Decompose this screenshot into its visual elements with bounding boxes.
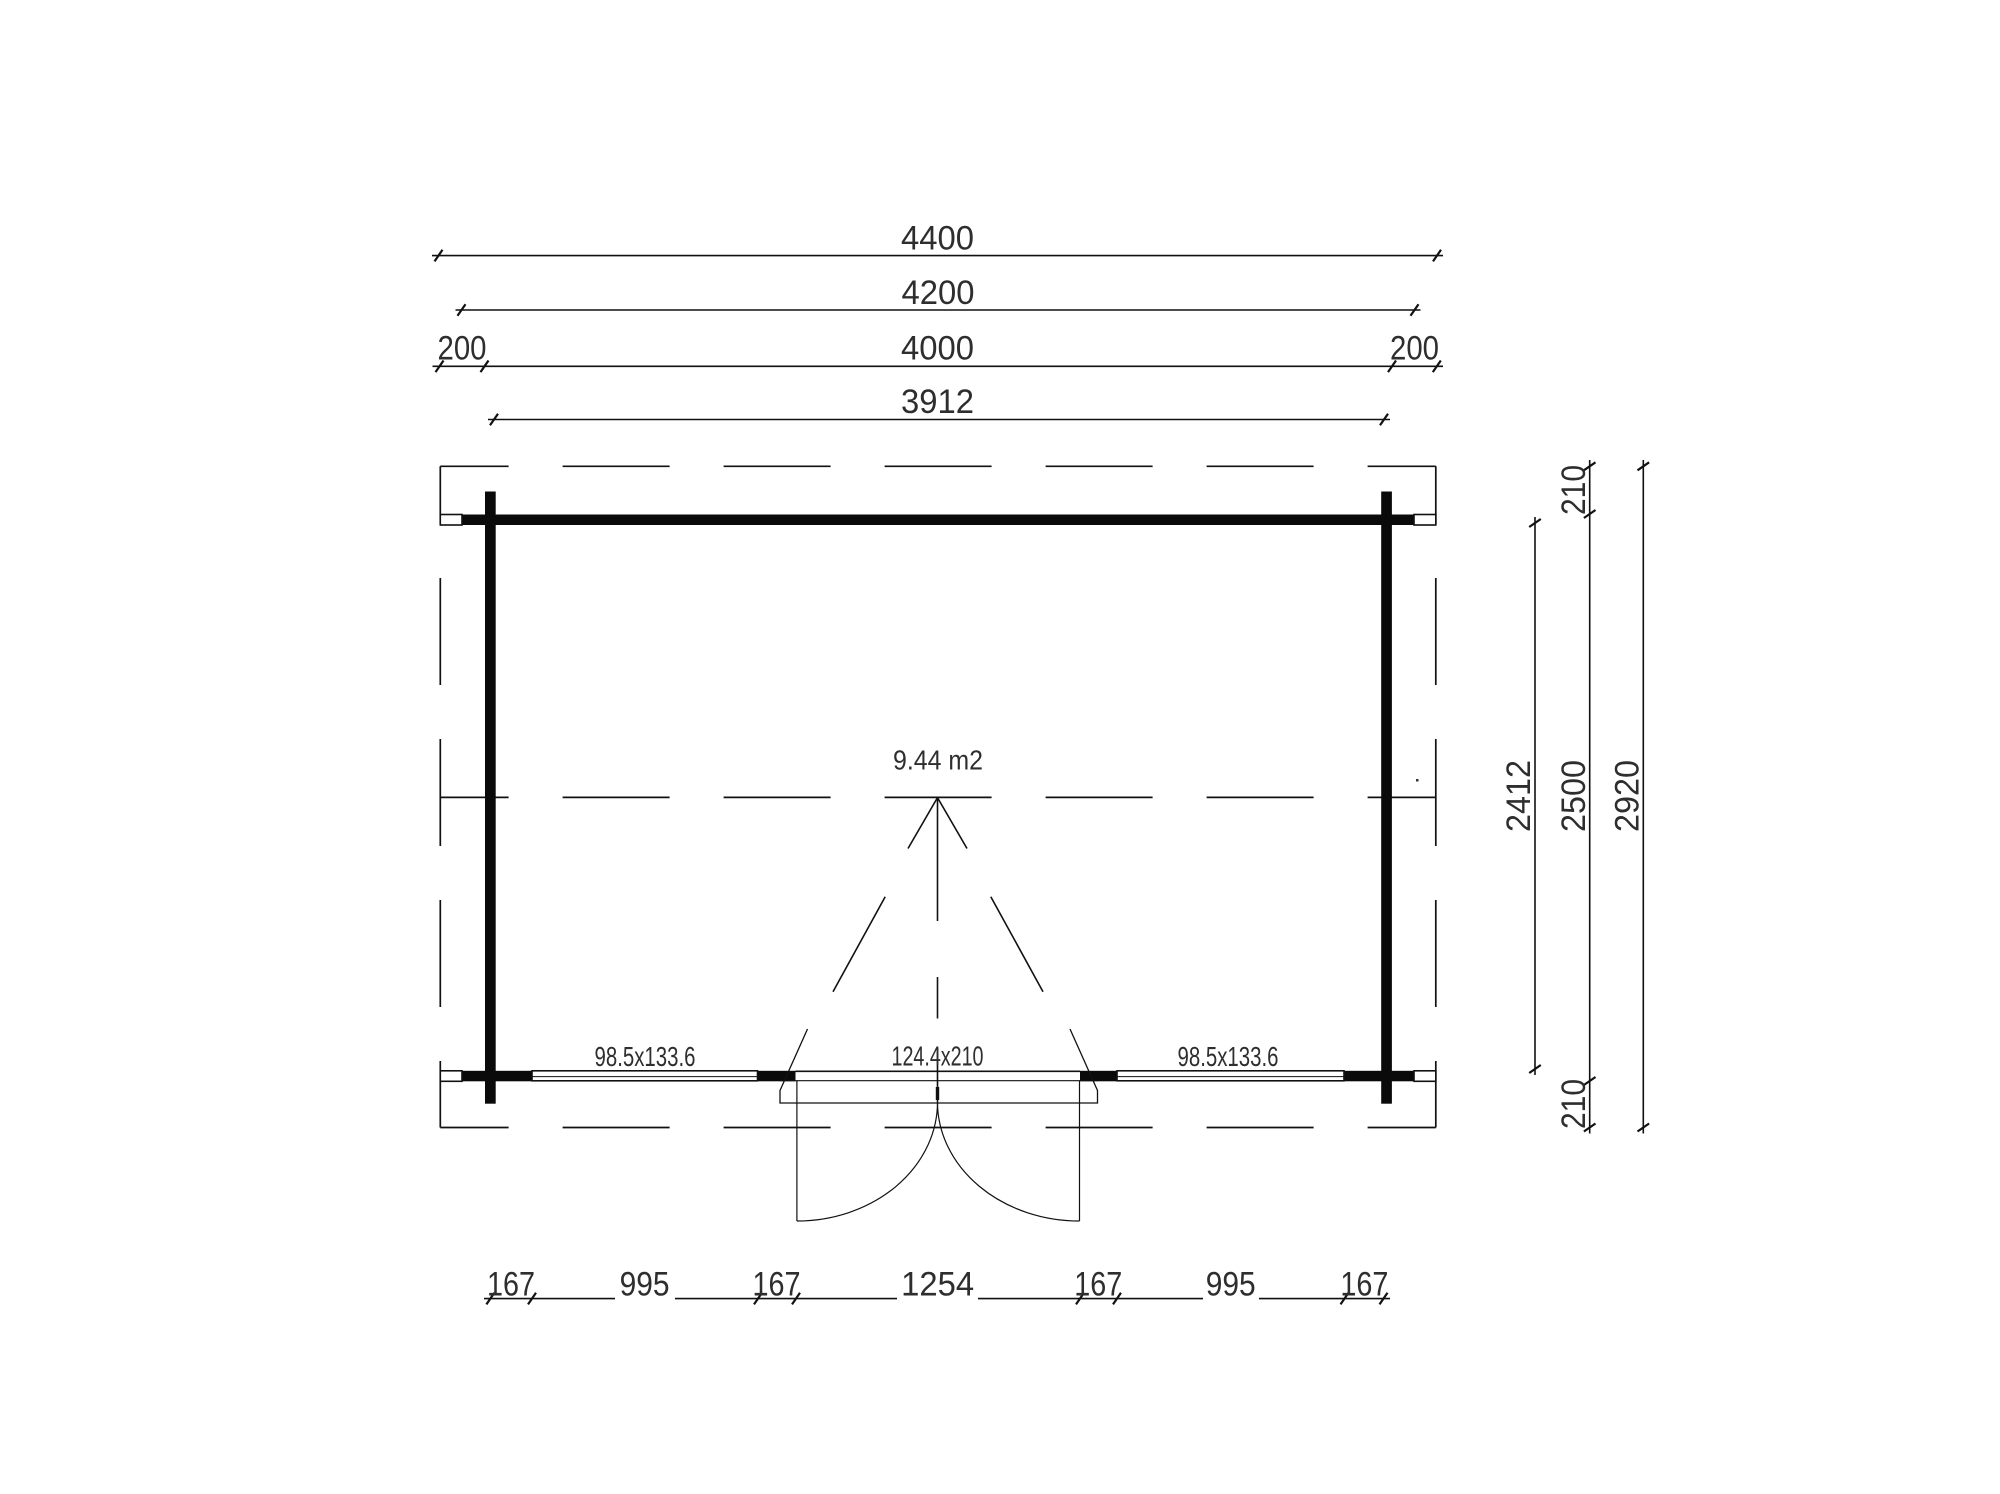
svg-text:1254: 1254: [901, 1266, 974, 1304]
svg-text:4000: 4000: [901, 330, 974, 368]
svg-text:167: 167: [753, 1266, 801, 1304]
svg-text:124.4x210: 124.4x210: [892, 1041, 984, 1072]
svg-text:2920: 2920: [1608, 760, 1646, 832]
svg-text:3912: 3912: [901, 383, 974, 421]
svg-text:4200: 4200: [902, 274, 975, 312]
svg-text:995: 995: [620, 1266, 670, 1304]
svg-text:167: 167: [487, 1266, 535, 1304]
svg-text:167: 167: [1340, 1266, 1388, 1304]
svg-text:9.44 m2: 9.44 m2: [893, 745, 983, 776]
svg-text:210: 210: [1555, 1079, 1593, 1129]
svg-text:98.5x133.6: 98.5x133.6: [1178, 1041, 1279, 1072]
svg-text:98.5x133.6: 98.5x133.6: [595, 1041, 696, 1072]
svg-text:2412: 2412: [1500, 760, 1538, 832]
svg-text:4400: 4400: [901, 220, 974, 258]
svg-text:210: 210: [1555, 465, 1593, 515]
svg-text:200: 200: [438, 330, 487, 368]
svg-text:995: 995: [1206, 1266, 1256, 1304]
svg-text:167: 167: [1074, 1266, 1122, 1304]
svg-text:200: 200: [1390, 330, 1439, 368]
svg-text:2500: 2500: [1555, 760, 1593, 832]
